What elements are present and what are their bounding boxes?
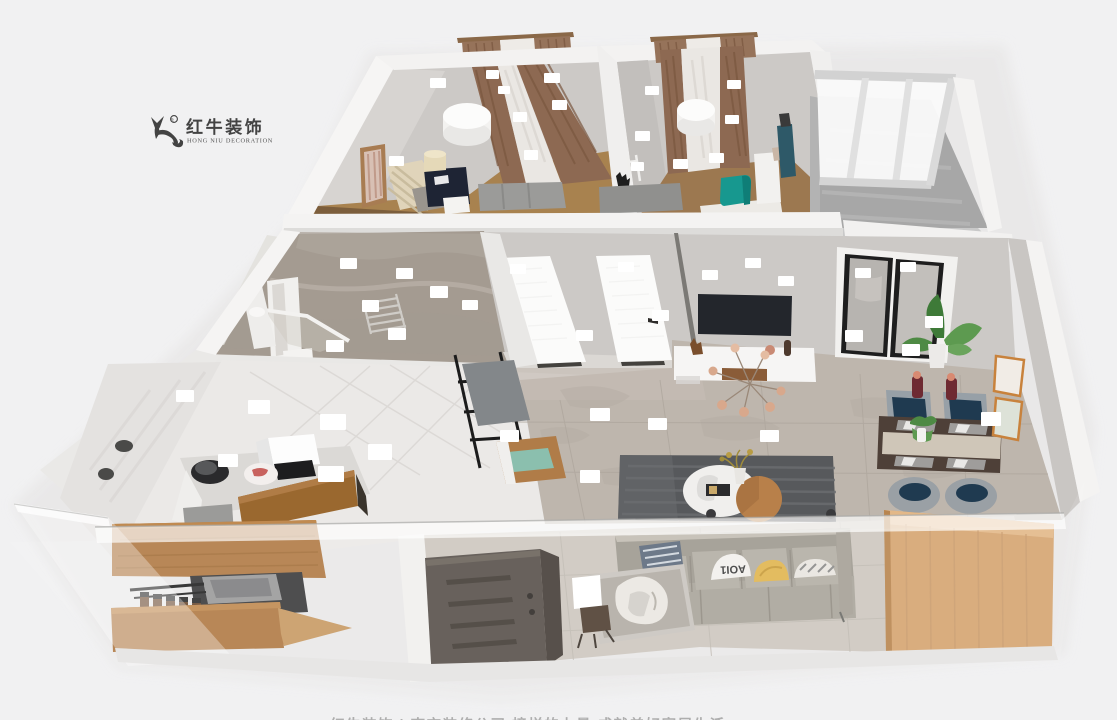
svg-text:红牛装饰: 红牛装饰: [186, 117, 264, 137]
svg-text:HONG NIU DECORATION: HONG NIU DECORATION: [187, 138, 273, 145]
